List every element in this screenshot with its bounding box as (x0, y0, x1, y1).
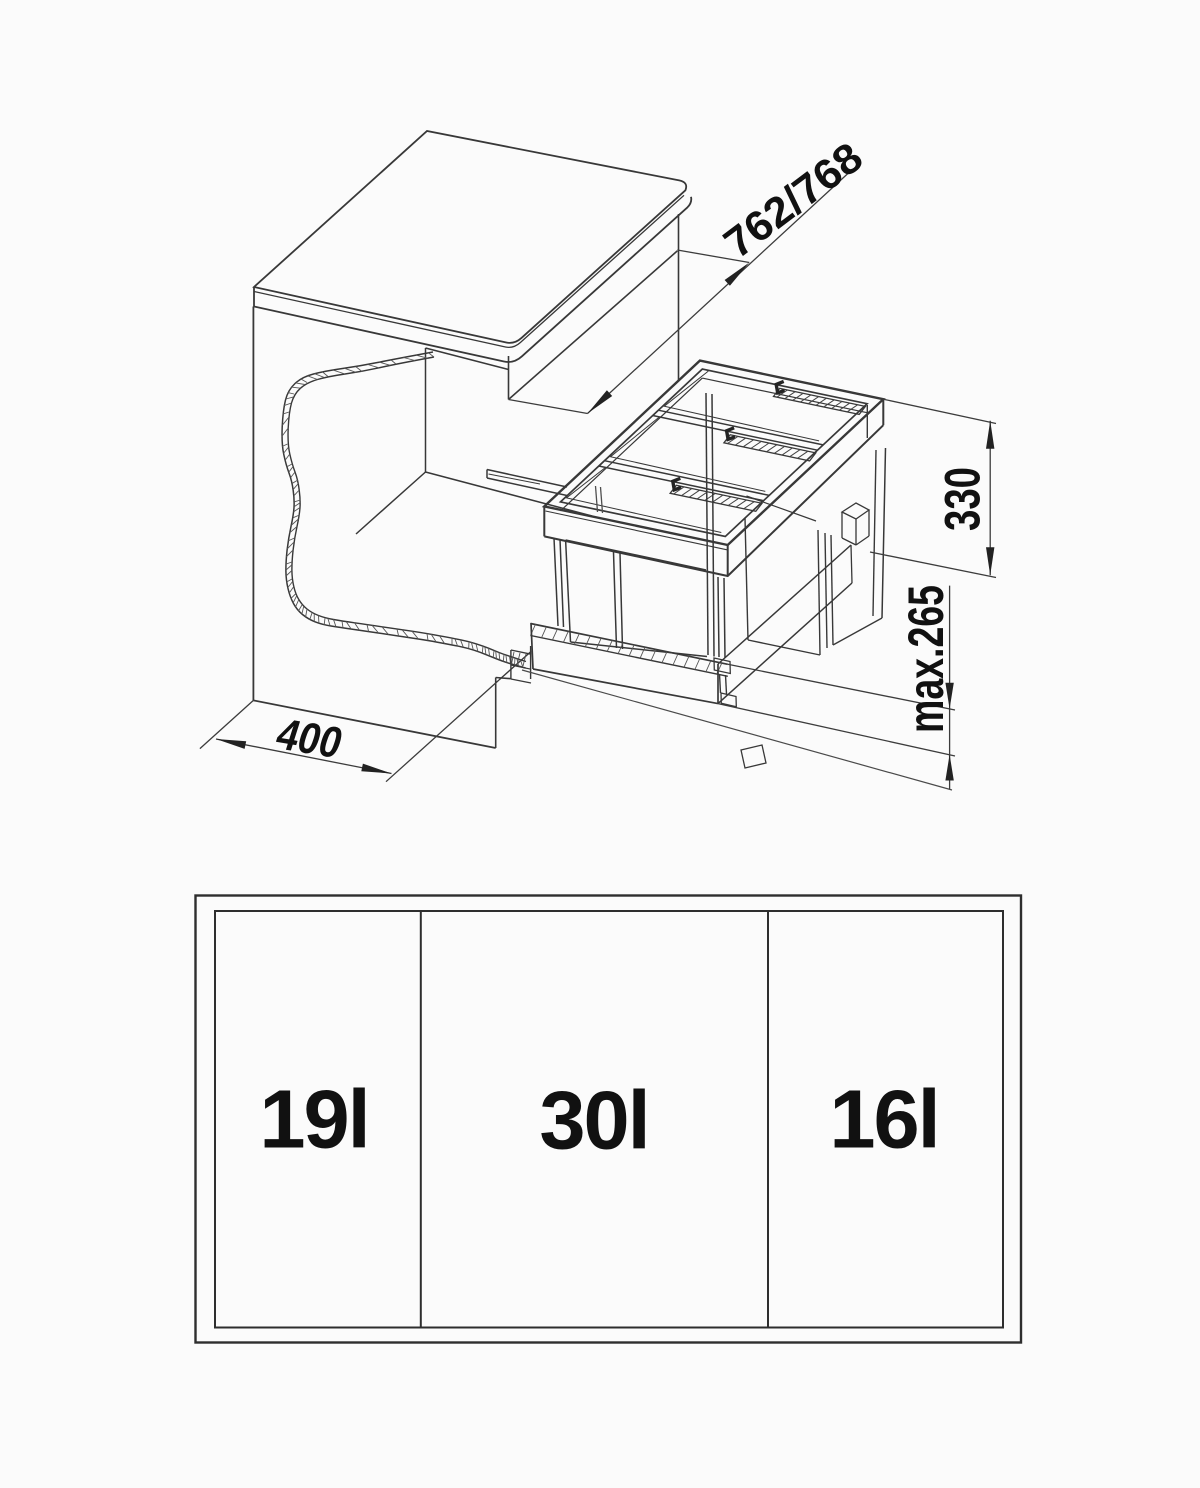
svg-text:max.265: max.265 (898, 585, 954, 733)
svg-text:19l: 19l (259, 1073, 368, 1166)
svg-text:16l: 16l (829, 1073, 938, 1166)
svg-text:30l: 30l (539, 1074, 648, 1167)
svg-text:330: 330 (935, 467, 991, 531)
